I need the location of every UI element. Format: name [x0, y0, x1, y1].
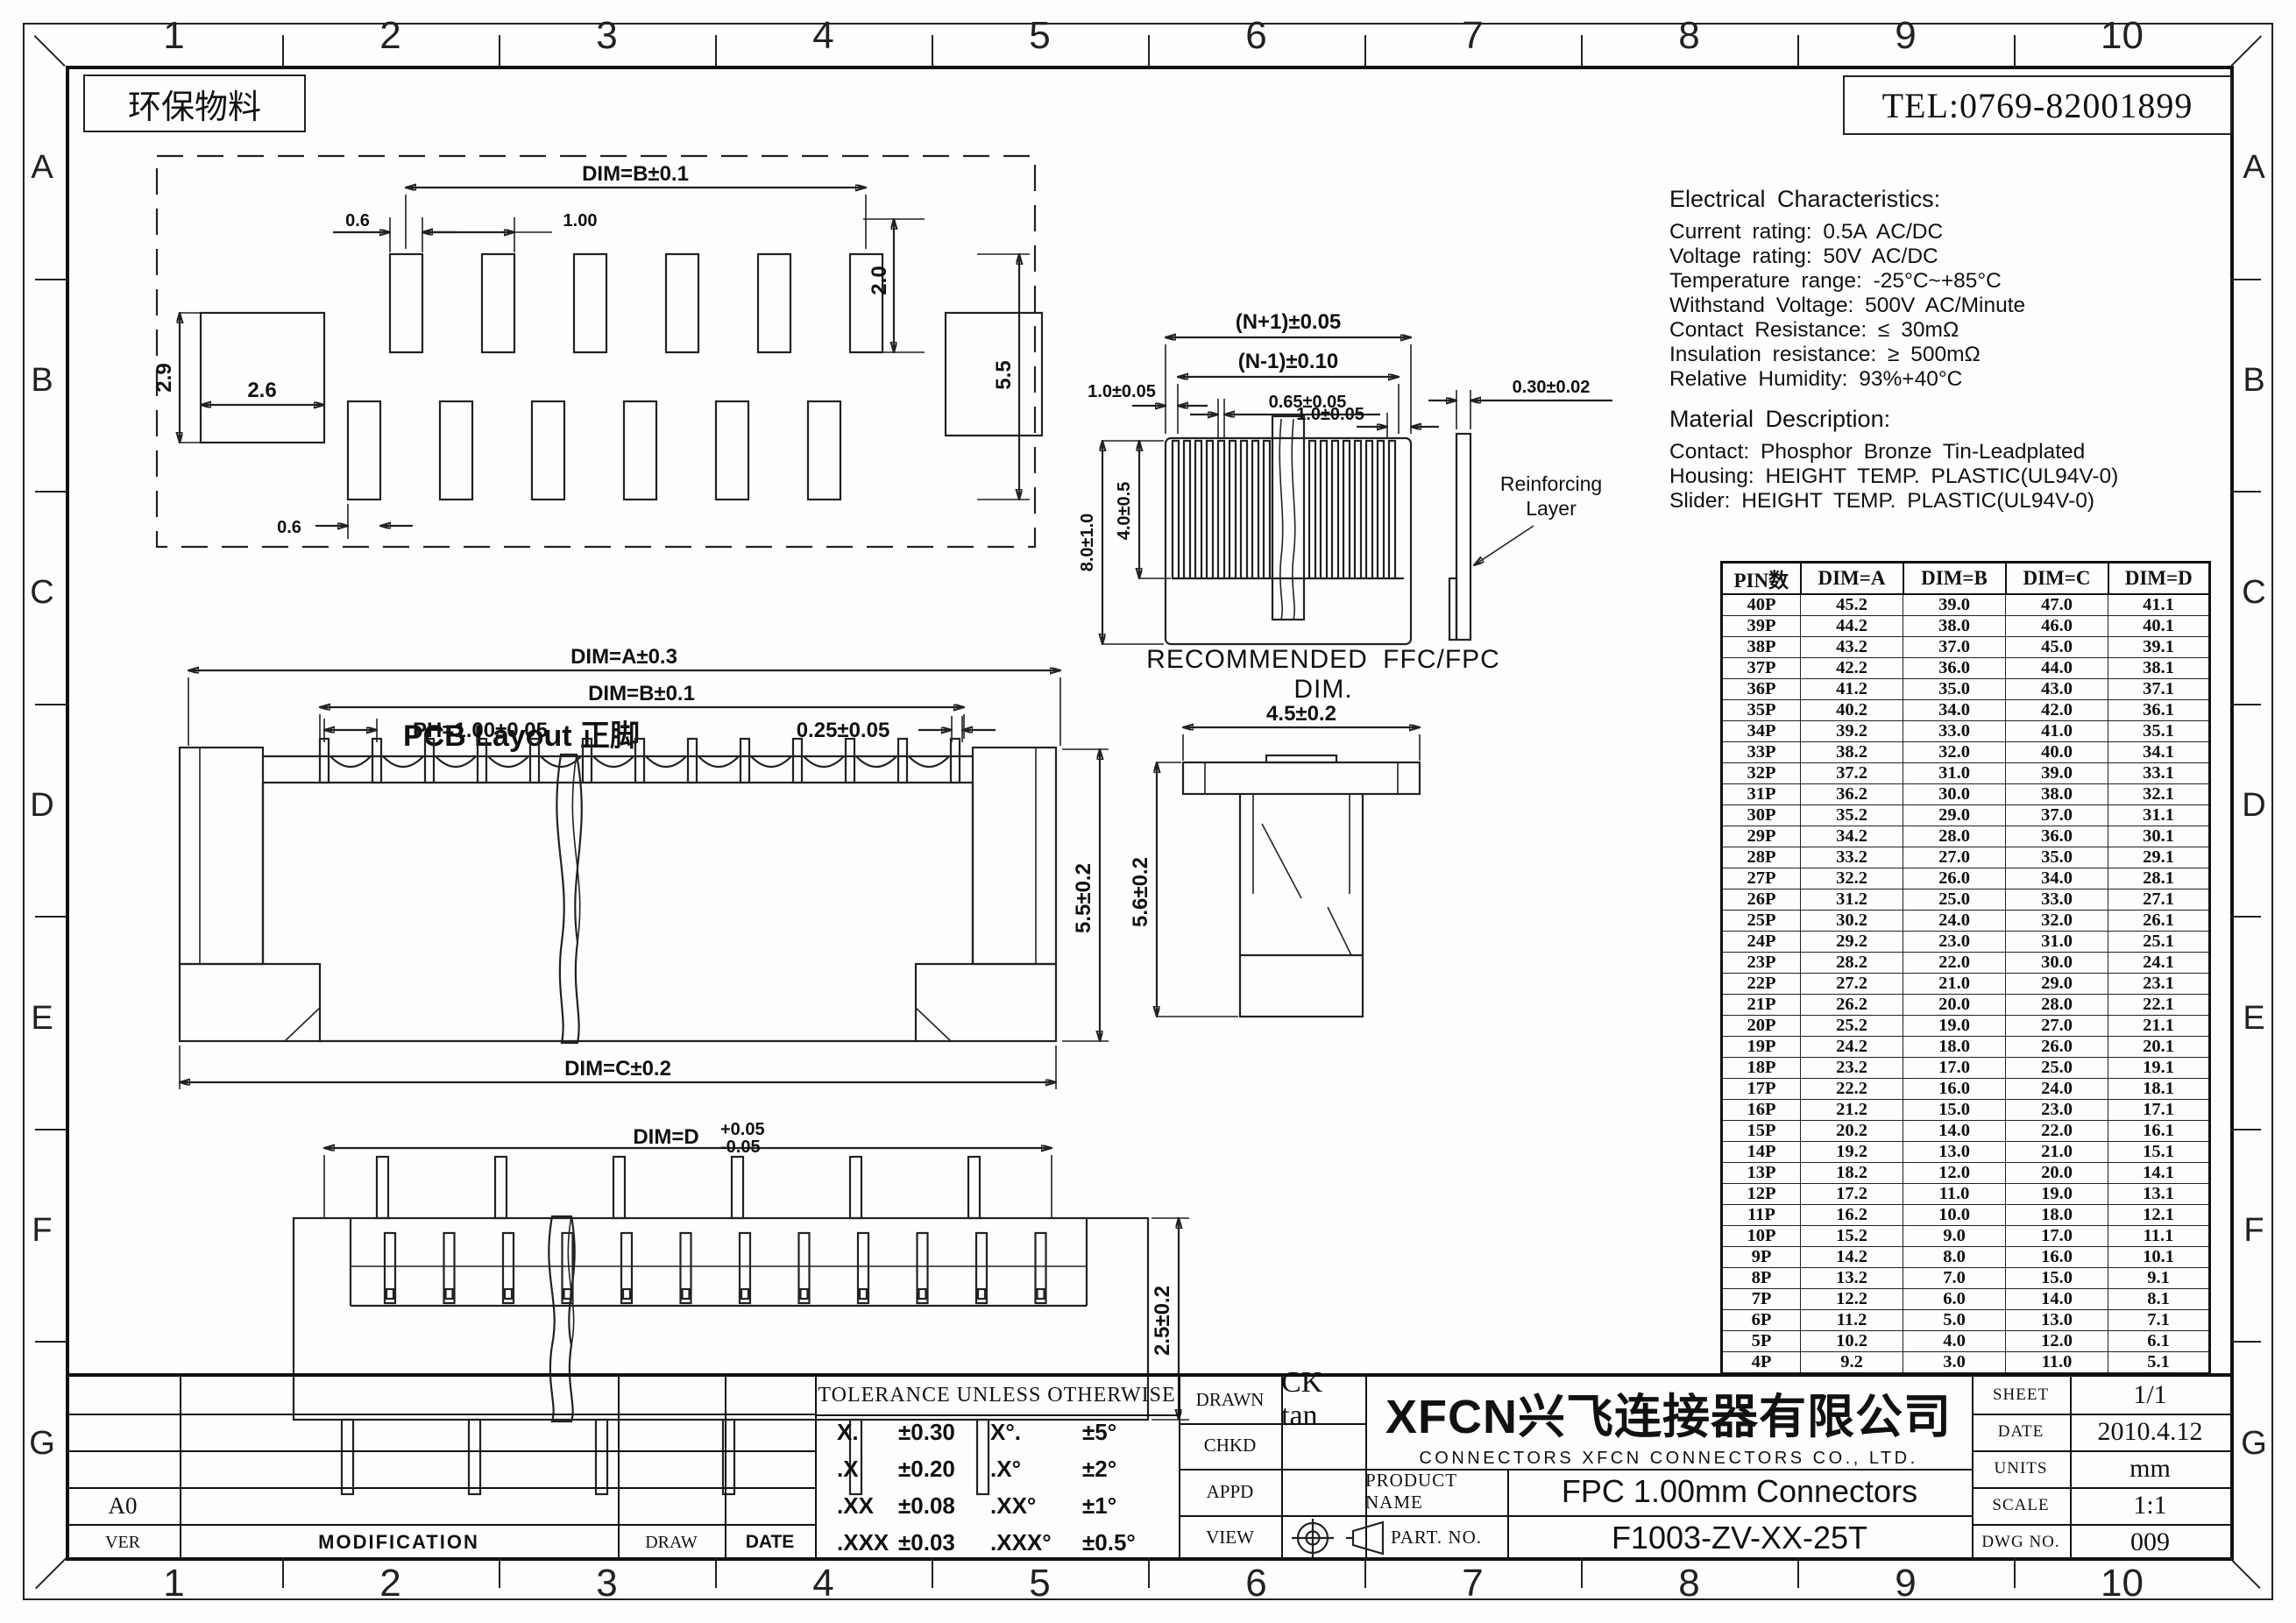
side-flange: [1183, 762, 1420, 794]
frame-row-letter: A: [18, 149, 67, 187]
frame-column-number: 7: [1438, 14, 1508, 58]
bottom-top-pins: [377, 1157, 980, 1218]
spec-line: Temperature range: -25°C~+85°C: [1669, 269, 2195, 294]
frame-row-letter: F: [18, 1212, 67, 1250]
frame-column-number: 10: [2087, 1562, 2158, 1605]
frame-column-number: 4: [789, 14, 859, 58]
frame-column-number: 7: [1438, 1562, 1508, 1605]
pin-table-row: 20P25.219.027.021.1: [1722, 1016, 2210, 1037]
pin-table-row: 27P32.226.034.028.1: [1722, 868, 2210, 889]
material-note-box: 环保物料: [83, 74, 306, 132]
pin-table-row: 40P45.239.047.041.1: [1722, 594, 2210, 616]
revision-header-draw: DRAW: [618, 1524, 725, 1561]
front-right-block: [973, 748, 1056, 964]
drawing-sheet: 1122334455667788991010AABBCCDDEEFFGG 环保物…: [0, 0, 2296, 1623]
pin-table-row: 33P38.232.040.034.1: [1722, 742, 2210, 763]
revision-ver-value: A0: [66, 1487, 180, 1524]
frame-tick: [715, 35, 717, 66]
pin-table-row: 16P21.215.023.017.1: [1722, 1100, 2210, 1121]
frame-column-number: 2: [356, 14, 426, 58]
frame-tick: [1148, 35, 1150, 66]
pin-table-row: 14P19.213.021.015.1: [1722, 1142, 2210, 1163]
frame-tick: [2230, 1341, 2261, 1343]
info-label: UNITS: [1972, 1450, 2070, 1487]
bottom-contacts: [385, 1233, 1046, 1303]
pin-table-row: 32P37.231.039.033.1: [1722, 763, 2210, 784]
revision-header-date: DATE: [725, 1524, 815, 1561]
spec-line: Relative Humidity: 93%+40°C: [1669, 367, 2195, 392]
pin-table-row: 34P39.233.041.035.1: [1722, 721, 2210, 742]
dim-label: 5.6±0.2: [1129, 857, 1152, 927]
frame-row-letter: A: [2229, 149, 2278, 187]
info-value: 1:1: [2070, 1487, 2230, 1524]
pin-table-header-cell: DIM=A: [1801, 563, 1903, 595]
pin-table-row: 11P16.210.018.012.1: [1722, 1205, 2210, 1226]
dim-tol-dn: -0.05: [720, 1138, 761, 1157]
sign-label: CHKD: [1179, 1423, 1281, 1470]
frame-row-letter: C: [2229, 574, 2278, 612]
frame-row-letter: E: [18, 1000, 67, 1038]
product-name-value: FPC 1.00mm Connectors: [1507, 1469, 1972, 1515]
reinforcing-label-1: Reinforcing: [1500, 472, 1602, 495]
dim-label: 0.6: [345, 211, 370, 230]
front-view: DIM=A±0.3 DIM=B±0.1 PH=1.00±0.05 0.25±0.…: [175, 644, 1157, 1100]
frame-column-number: 5: [1005, 14, 1075, 58]
frame-row-letter: C: [18, 574, 67, 612]
frame-tick: [715, 1557, 717, 1588]
dim-label: 2.9: [152, 363, 176, 392]
pin-table-row: 12P17.211.019.013.1: [1722, 1184, 2210, 1205]
frame-tick: [282, 1557, 284, 1588]
dim-label: DIM=B±0.1: [582, 162, 689, 186]
frame-row-letter: D: [2229, 787, 2278, 825]
side-view: 4.5±0.2 5.6±0.2: [1130, 692, 1446, 1052]
frame-column-number: 9: [1871, 1562, 1941, 1605]
frame-column-number: 2: [356, 1562, 426, 1605]
sign-value: [1281, 1423, 1365, 1470]
frame-tick: [2230, 279, 2261, 280]
ffc-reinforcing-strip: [1456, 434, 1470, 640]
dim-label: 1.0±0.05: [1296, 405, 1364, 424]
info-value: 1/1: [2070, 1377, 2230, 1414]
pcb-layout-view: DIM=B±0.1 0.6 1.00 2.0 2.6 2.9 5.5 0.6: [153, 149, 1038, 587]
frame-tick: [282, 35, 284, 66]
frame-tick: [35, 916, 66, 918]
ffc-caption: RECOMMENDED FFC/FPC DIM.: [1122, 645, 1525, 705]
frame-tick: [499, 1557, 500, 1588]
frame-column-number: 6: [1222, 14, 1292, 58]
reinforcing-label-2: Layer: [1526, 497, 1577, 520]
tel-box: TEL:0769-82001899: [1843, 75, 2232, 135]
material-lines: Contact: Phosphor Bronze Tin-LeadplatedH…: [1669, 440, 2195, 514]
part-no-label: PART. NO.: [1365, 1515, 1507, 1562]
pin-table-header-cell: DIM=B: [1903, 563, 2006, 595]
frame-tick: [1797, 35, 1799, 66]
dim-label: 2.6: [247, 379, 276, 402]
info-label: DATE: [1972, 1414, 2070, 1450]
dim-label: DIM=D: [633, 1125, 698, 1149]
frame-column-number: 4: [789, 1562, 859, 1605]
material-note: 环保物料: [128, 80, 261, 128]
pcb-top-pads: [390, 254, 882, 352]
tolerance-row: .XX±0.08.XX°±1°: [837, 1488, 1161, 1525]
sign-value: CK tan: [1281, 1377, 1365, 1423]
part-no-value: F1003-ZV-XX-25T: [1507, 1515, 1972, 1562]
frame-tick: [1581, 35, 1583, 66]
dim-label: 4.0±0.5: [1115, 482, 1134, 541]
pin-table-row: 26P31.225.033.027.1: [1722, 889, 2210, 911]
pin-table-row: 35P40.234.042.036.1: [1722, 700, 2210, 721]
pin-table-row: 36P41.235.043.037.1: [1722, 679, 2210, 700]
revision-header-ver: VER: [66, 1524, 180, 1561]
pcb-bottom-pads: [348, 401, 840, 500]
frame-row-letter: G: [18, 1425, 67, 1463]
spec-line: Withstand Voltage: 500V AC/Minute: [1669, 294, 2195, 318]
frame-row-letter: B: [18, 362, 67, 400]
spec-line: Contact: Phosphor Bronze Tin-Leadplated: [1669, 440, 2195, 464]
electrical-lines: Current rating: 0.5A AC/DCVoltage rating…: [1669, 220, 2195, 392]
frame-column-number: 10: [2087, 14, 2158, 58]
front-right-foot: [916, 964, 1056, 1041]
dim-label: (N+1)±0.05: [1236, 310, 1342, 334]
sign-label: APPD: [1179, 1469, 1281, 1515]
frame-tick: [932, 1557, 933, 1588]
pin-table-row: 25P30.224.032.026.1: [1722, 911, 2210, 932]
spec-line: Current rating: 0.5A AC/DC: [1669, 220, 2195, 245]
frame-column-number: 1: [139, 1562, 209, 1605]
company-block: XFCN兴飞连接器有限公司 CONNECTORS XFCN CONNECTORS…: [1365, 1377, 1972, 1469]
dim-label: (N-1)±0.10: [1238, 350, 1339, 373]
spec-line: Voltage rating: 50V AC/DC: [1669, 245, 2195, 269]
frame-tick: [1364, 35, 1366, 66]
pin-table-header-cell: PIN数: [1722, 563, 1801, 595]
frame-tick: [2014, 35, 2016, 66]
tolerance-row: .X±0.20.X°±2°: [837, 1451, 1161, 1488]
front-left-foot: [180, 964, 320, 1041]
dim-label: 2.0: [868, 266, 891, 294]
pin-table-row: 31P36.230.038.032.1: [1722, 784, 2210, 805]
electrical-title: Electrical Characteristics:: [1669, 186, 2195, 213]
dim-label: 8.0±1.0: [1078, 514, 1097, 572]
side-top-bump: [1266, 755, 1336, 762]
frame-column-number: 8: [1655, 1562, 1725, 1605]
pin-table-row: 13P18.212.020.014.1: [1722, 1163, 2210, 1184]
frame-tick: [2230, 916, 2261, 918]
frame-row-letter: F: [2229, 1212, 2278, 1250]
pcb-left-pad: [201, 313, 324, 443]
dim-label: DIM=A±0.3: [570, 645, 677, 669]
pin-table-row: 19P24.218.026.020.1: [1722, 1037, 2210, 1058]
pin-dimension-table: PIN数DIM=ADIM=BDIM=CDIM=D 40P45.239.047.0…: [1720, 561, 2208, 1368]
frame-tick: [35, 704, 66, 705]
frame-tick: [1364, 1557, 1366, 1588]
frame-column-number: 5: [1005, 1562, 1075, 1605]
front-left-block: [180, 748, 263, 964]
frame-tick: [2014, 1557, 2016, 1588]
dim-label: 4.5±0.2: [1266, 702, 1336, 726]
dim-label: 0.25±0.05: [797, 719, 890, 742]
frame-tick: [35, 1129, 66, 1130]
info-label: DWG NO.: [1972, 1524, 2070, 1561]
pin-table-body: 40P45.239.047.041.139P44.238.046.040.138…: [1722, 594, 2210, 1374]
title-block: VER MODIFICATION DRAW DATE A0 TOLERANCE …: [66, 1373, 2230, 1561]
pin-table-row: 8P13.27.015.09.1: [1722, 1268, 2210, 1289]
pin-table-row: 18P23.217.025.019.1: [1722, 1058, 2210, 1079]
frame-tick: [932, 35, 933, 66]
material-description: Material Description: Contact: Phosphor …: [1669, 406, 2195, 514]
dim-label: 5.5: [992, 360, 1016, 389]
company-name-cn: XFCN兴飞连接器有限公司: [1385, 1378, 1952, 1447]
frame-column-number: 1: [139, 14, 209, 58]
material-title: Material Description:: [1669, 406, 2195, 433]
pin-table-header-cell: DIM=C: [2006, 563, 2108, 595]
frame-tick: [1581, 1557, 1583, 1588]
spec-line: Slider: HEIGHT TEMP. PLASTIC(UL94V-0): [1669, 489, 2195, 514]
pin-table-row: 21P26.220.028.022.1: [1722, 995, 2210, 1016]
pin-table-row: 38P43.237.045.039.1: [1722, 637, 2210, 658]
pin-table-row: 17P22.216.024.018.1: [1722, 1079, 2210, 1100]
frame-tick: [35, 279, 66, 280]
frame-tick: [2230, 704, 2261, 705]
pin-table-row: 10P15.29.017.011.1: [1722, 1226, 2210, 1247]
info-value: mm: [2070, 1450, 2230, 1487]
pin-table-row: 15P20.214.022.016.1: [1722, 1121, 2210, 1142]
pin-table-row: 9P14.28.016.010.1: [1722, 1247, 2210, 1268]
front-pins: [320, 739, 960, 783]
frame-tick: [499, 35, 500, 66]
side-bottom-block: [1240, 955, 1363, 1017]
pin-table-row: 23P28.222.030.024.1: [1722, 953, 2210, 974]
frame-row-letter: G: [2229, 1425, 2278, 1463]
dim-label: 0.30±0.02: [1513, 378, 1591, 397]
ffc-conductors: [1173, 441, 1395, 578]
sign-value: [1281, 1469, 1365, 1515]
frame-column-number: 6: [1222, 1562, 1292, 1605]
pin-table-row: 4P9.23.011.05.1: [1722, 1352, 2210, 1374]
info-value: 009: [2070, 1524, 2230, 1561]
spec-line: Housing: HEIGHT TEMP. PLASTIC(UL94V-0): [1669, 464, 2195, 489]
sign-label: VIEW: [1179, 1515, 1281, 1562]
pin-table-row: 37P42.236.044.038.1: [1722, 658, 2210, 679]
pin-table-row: 28P33.227.035.029.1: [1722, 847, 2210, 868]
pin-table-row: 30P35.229.037.031.1: [1722, 805, 2210, 826]
frame-tick: [2230, 491, 2261, 493]
info-label: SCALE: [1972, 1487, 2070, 1524]
tolerance-row: .XXX±0.03.XXX°±0.5°: [837, 1524, 1161, 1561]
pin-table-header-cell: DIM=D: [2108, 563, 2210, 595]
pin-table-row: 24P29.223.031.025.1: [1722, 932, 2210, 953]
frame-row-letter: E: [2229, 1000, 2278, 1038]
pin-table-row: 22P27.221.029.023.1: [1722, 974, 2210, 995]
frame-column-number: 8: [1655, 14, 1725, 58]
frame-tick: [2230, 1129, 2261, 1130]
pin-table-row: 6P11.25.013.07.1: [1722, 1310, 2210, 1331]
info-label: SHEET: [1972, 1377, 2070, 1414]
frame-column-number: 3: [572, 14, 642, 58]
info-value: 2010.4.12: [2070, 1414, 2230, 1450]
spec-line: Contact Resistance: ≤ 30mΩ: [1669, 318, 2195, 343]
pin-table-row: 5P10.24.012.06.1: [1722, 1331, 2210, 1352]
pin-table-header: PIN数DIM=ADIM=BDIM=CDIM=D: [1722, 563, 2210, 595]
frame-tick: [35, 1341, 66, 1343]
frame-tick: [1797, 1557, 1799, 1588]
dim-tol-up: +0.05: [720, 1120, 765, 1139]
dim-label: 5.5±0.2: [1072, 863, 1095, 933]
tel-number: TEL:0769-82001899: [1882, 85, 2193, 126]
dim-label: 1.00: [563, 211, 598, 230]
frame-column-number: 3: [572, 1562, 642, 1605]
sign-label: DRAWN: [1179, 1377, 1281, 1423]
tolerance-row: X.±0.30X°.±5°: [837, 1414, 1161, 1451]
pin-table-row: 39P44.238.046.040.1: [1722, 616, 2210, 637]
dim-label: 1.0±0.05: [1088, 382, 1156, 401]
pin-table-row: 29P34.228.036.030.1: [1722, 826, 2210, 847]
pin-table-row: 7P12.26.014.08.1: [1722, 1289, 2210, 1310]
frame-tick: [35, 491, 66, 493]
dim-label: 2.5±0.2: [1151, 1286, 1174, 1356]
frame-tick: [1148, 1557, 1150, 1588]
company-name-en: CONNECTORS XFCN CONNECTORS CO., LTD.: [1419, 1449, 1917, 1469]
frame-row-letter: B: [2229, 362, 2278, 400]
spec-line: Insulation resistance: ≥ 500mΩ: [1669, 343, 2195, 367]
product-name-label: PRODUCT NAME: [1365, 1469, 1507, 1515]
dim-label: DIM=B±0.1: [588, 682, 695, 705]
revision-header-modification: MODIFICATION: [180, 1524, 618, 1561]
dim-label: 0.6: [277, 518, 301, 537]
frame-column-number: 9: [1871, 14, 1941, 58]
dim-label: DIM=C±0.2: [564, 1057, 671, 1081]
tolerance-header: TOLERANCE UNLESS OTHERWISE: [815, 1377, 1179, 1414]
frame-row-letter: D: [18, 787, 67, 825]
electrical-characteristics: Electrical Characteristics: Current rati…: [1669, 186, 2195, 392]
